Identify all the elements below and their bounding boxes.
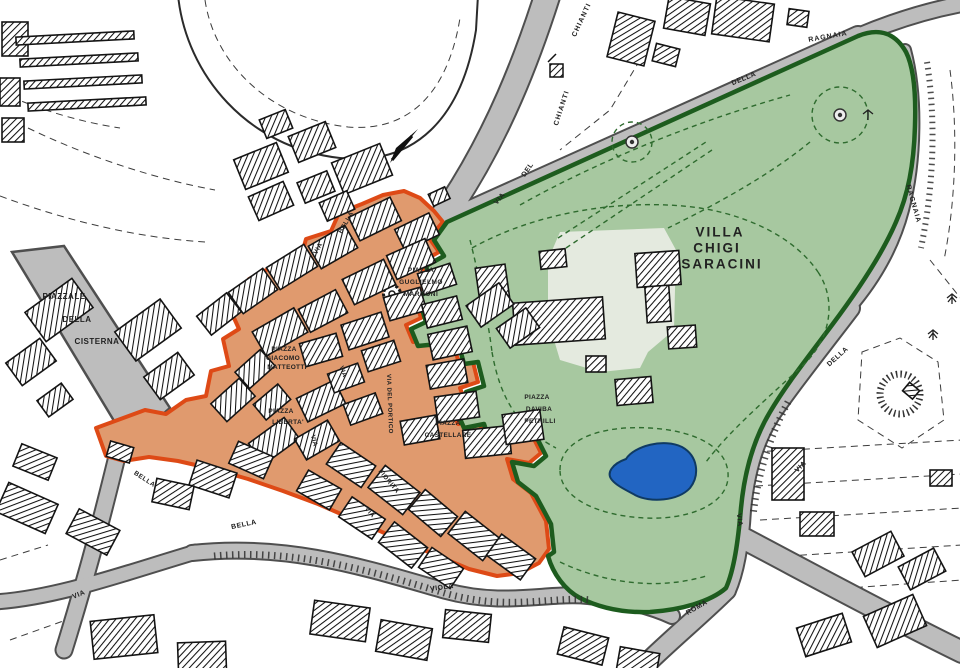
map-canvas: VILLACHIGISARACINIPIAZZAGUGLIELMOMARCONI… [0,0,960,668]
town-plan-map [0,0,960,668]
